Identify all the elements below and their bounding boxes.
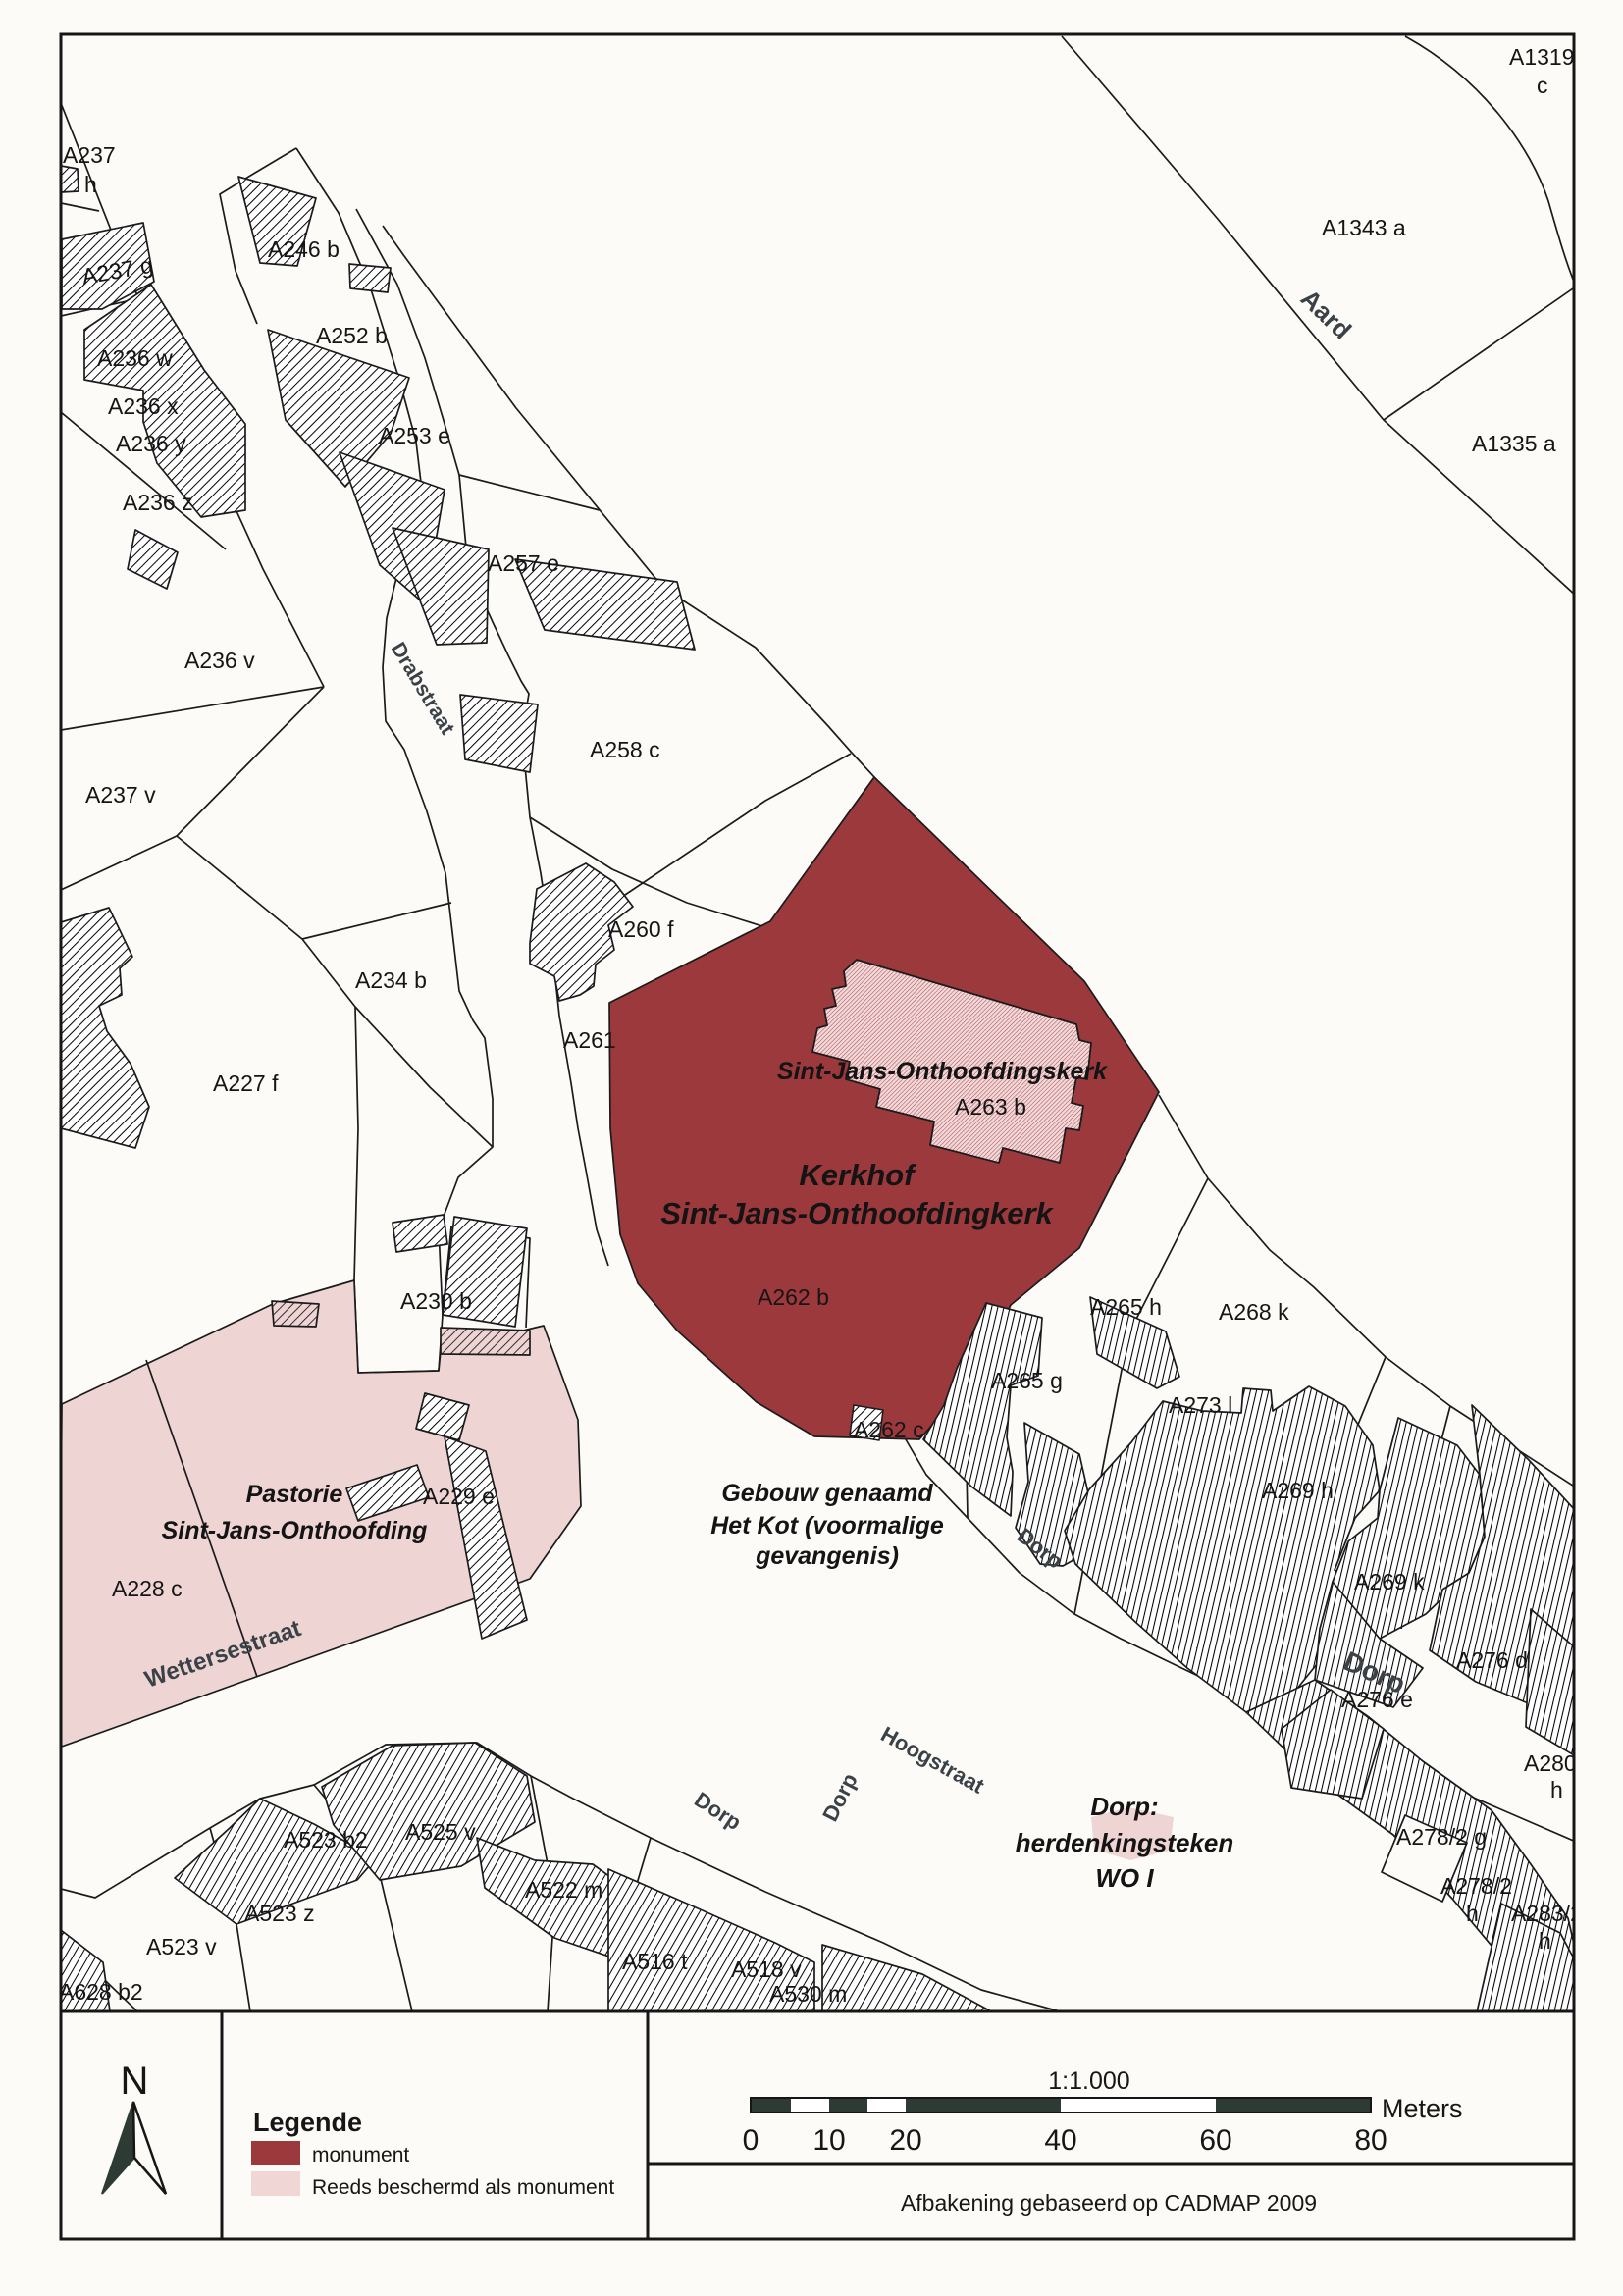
svg-text:h: h — [1466, 1901, 1479, 1926]
svg-text:10: 10 — [812, 2124, 845, 2157]
svg-text:A262 c: A262 c — [854, 1417, 924, 1442]
svg-text:N: N — [121, 2060, 149, 2103]
svg-text:A261: A261 — [563, 1027, 616, 1053]
svg-text:A257 e: A257 e — [488, 550, 559, 576]
svg-text:h: h — [84, 172, 97, 197]
svg-text:A1335 a: A1335 a — [1472, 431, 1556, 456]
svg-text:h: h — [1539, 1928, 1551, 1954]
svg-text:c: c — [1537, 73, 1548, 98]
svg-text:Afbakening gebaseerd op CADMAP: Afbakening gebaseerd op CADMAP 2009 — [901, 2190, 1317, 2216]
svg-text:A269 h: A269 h — [1262, 1478, 1334, 1503]
svg-text:A516 t: A516 t — [622, 1949, 688, 1974]
svg-text:A265 g: A265 g — [991, 1368, 1063, 1393]
svg-text:A1343 a: A1343 a — [1322, 215, 1406, 240]
svg-text:0: 0 — [743, 2124, 759, 2157]
svg-text:A530 m: A530 m — [769, 1981, 847, 2007]
svg-text:A236 v: A236 v — [184, 648, 255, 673]
svg-text:A236 w: A236 w — [97, 345, 173, 371]
svg-text:A265 h: A265 h — [1090, 1294, 1162, 1320]
svg-text:A230 b: A230 b — [400, 1288, 472, 1314]
svg-text:A236 y: A236 y — [116, 431, 186, 456]
svg-text:Sint-Jans-Onthoofding: Sint-Jans-Onthoofding — [162, 1517, 428, 1544]
svg-text:A1319: A1319 — [1509, 44, 1575, 70]
svg-text:A237 v: A237 v — [85, 782, 156, 808]
svg-text:A236 x: A236 x — [108, 393, 179, 419]
svg-text:A283/2: A283/2 — [1511, 1901, 1583, 1926]
svg-text:Sint-Jans-Onthoofdingkerk: Sint-Jans-Onthoofdingkerk — [660, 1196, 1054, 1230]
svg-text:A273 l: A273 l — [1169, 1392, 1232, 1418]
svg-text:A628 b2: A628 b2 — [59, 1979, 143, 2005]
svg-text:WO I: WO I — [1095, 1863, 1154, 1893]
svg-text:A278/2 g: A278/2 g — [1396, 1824, 1487, 1850]
svg-text:gevangenis): gevangenis) — [755, 1542, 899, 1570]
svg-text:A252 b: A252 b — [316, 323, 388, 348]
svg-text:A278/2: A278/2 — [1440, 1873, 1512, 1899]
svg-text:h: h — [1550, 1777, 1563, 1802]
svg-text:80: 80 — [1354, 2124, 1387, 2157]
svg-text:A234 b: A234 b — [355, 967, 427, 993]
svg-text:A523 v: A523 v — [146, 1934, 217, 1959]
svg-text:A268 k: A268 k — [1219, 1299, 1289, 1325]
svg-text:A263 b: A263 b — [955, 1094, 1026, 1120]
svg-text:Meters: Meters — [1382, 2094, 1463, 2123]
svg-text:A523 b2: A523 b2 — [284, 1827, 368, 1852]
svg-text:Het Kot (voormalige: Het Kot (voormalige — [710, 1512, 944, 1539]
svg-text:A276 d: A276 d — [1456, 1647, 1528, 1673]
svg-text:40: 40 — [1044, 2124, 1076, 2157]
svg-text:A269 k: A269 k — [1354, 1569, 1425, 1594]
svg-text:Pastorie: Pastorie — [246, 1481, 343, 1508]
svg-text:Legende: Legende — [253, 2108, 362, 2137]
svg-text:A237: A237 — [63, 142, 116, 168]
svg-text:Kerkhof: Kerkhof — [799, 1158, 916, 1192]
svg-text:monument: monument — [312, 2144, 409, 2166]
svg-text:A262 b: A262 b — [758, 1284, 829, 1310]
svg-text:A522 m: A522 m — [525, 1877, 602, 1903]
svg-text:Dorp:: Dorp: — [1090, 1792, 1158, 1821]
svg-text:60: 60 — [1199, 2124, 1231, 2157]
svg-text:A280: A280 — [1524, 1750, 1577, 1776]
svg-text:A227 f: A227 f — [213, 1070, 279, 1096]
svg-text:A253 e: A253 e — [379, 423, 450, 448]
svg-text:1:1.000: 1:1.000 — [1048, 2067, 1129, 2095]
svg-text:20: 20 — [889, 2124, 921, 2157]
svg-text:A246 b: A246 b — [268, 236, 340, 262]
svg-text:A258 c: A258 c — [590, 737, 660, 762]
svg-text:A523 z: A523 z — [244, 1901, 315, 1926]
svg-text:Sint-Jans-Onthoofdingskerk: Sint-Jans-Onthoofdingskerk — [777, 1058, 1108, 1085]
svg-text:Gebouw genaamd: Gebouw genaamd — [721, 1480, 933, 1507]
svg-text:A276 e: A276 e — [1341, 1687, 1413, 1712]
svg-text:Reeds beschermd als monument: Reeds beschermd als monument — [312, 2176, 614, 2199]
svg-text:A260 f: A260 f — [608, 916, 674, 942]
svg-text:A229 e: A229 e — [423, 1484, 495, 1509]
svg-text:A236 z: A236 z — [123, 490, 193, 515]
svg-text:A228 c: A228 c — [112, 1576, 183, 1601]
svg-text:herdenkingsteken: herdenkingsteken — [1016, 1828, 1234, 1857]
svg-text:A518 v: A518 v — [731, 1957, 802, 1982]
svg-text:A525 v: A525 v — [405, 1819, 476, 1845]
